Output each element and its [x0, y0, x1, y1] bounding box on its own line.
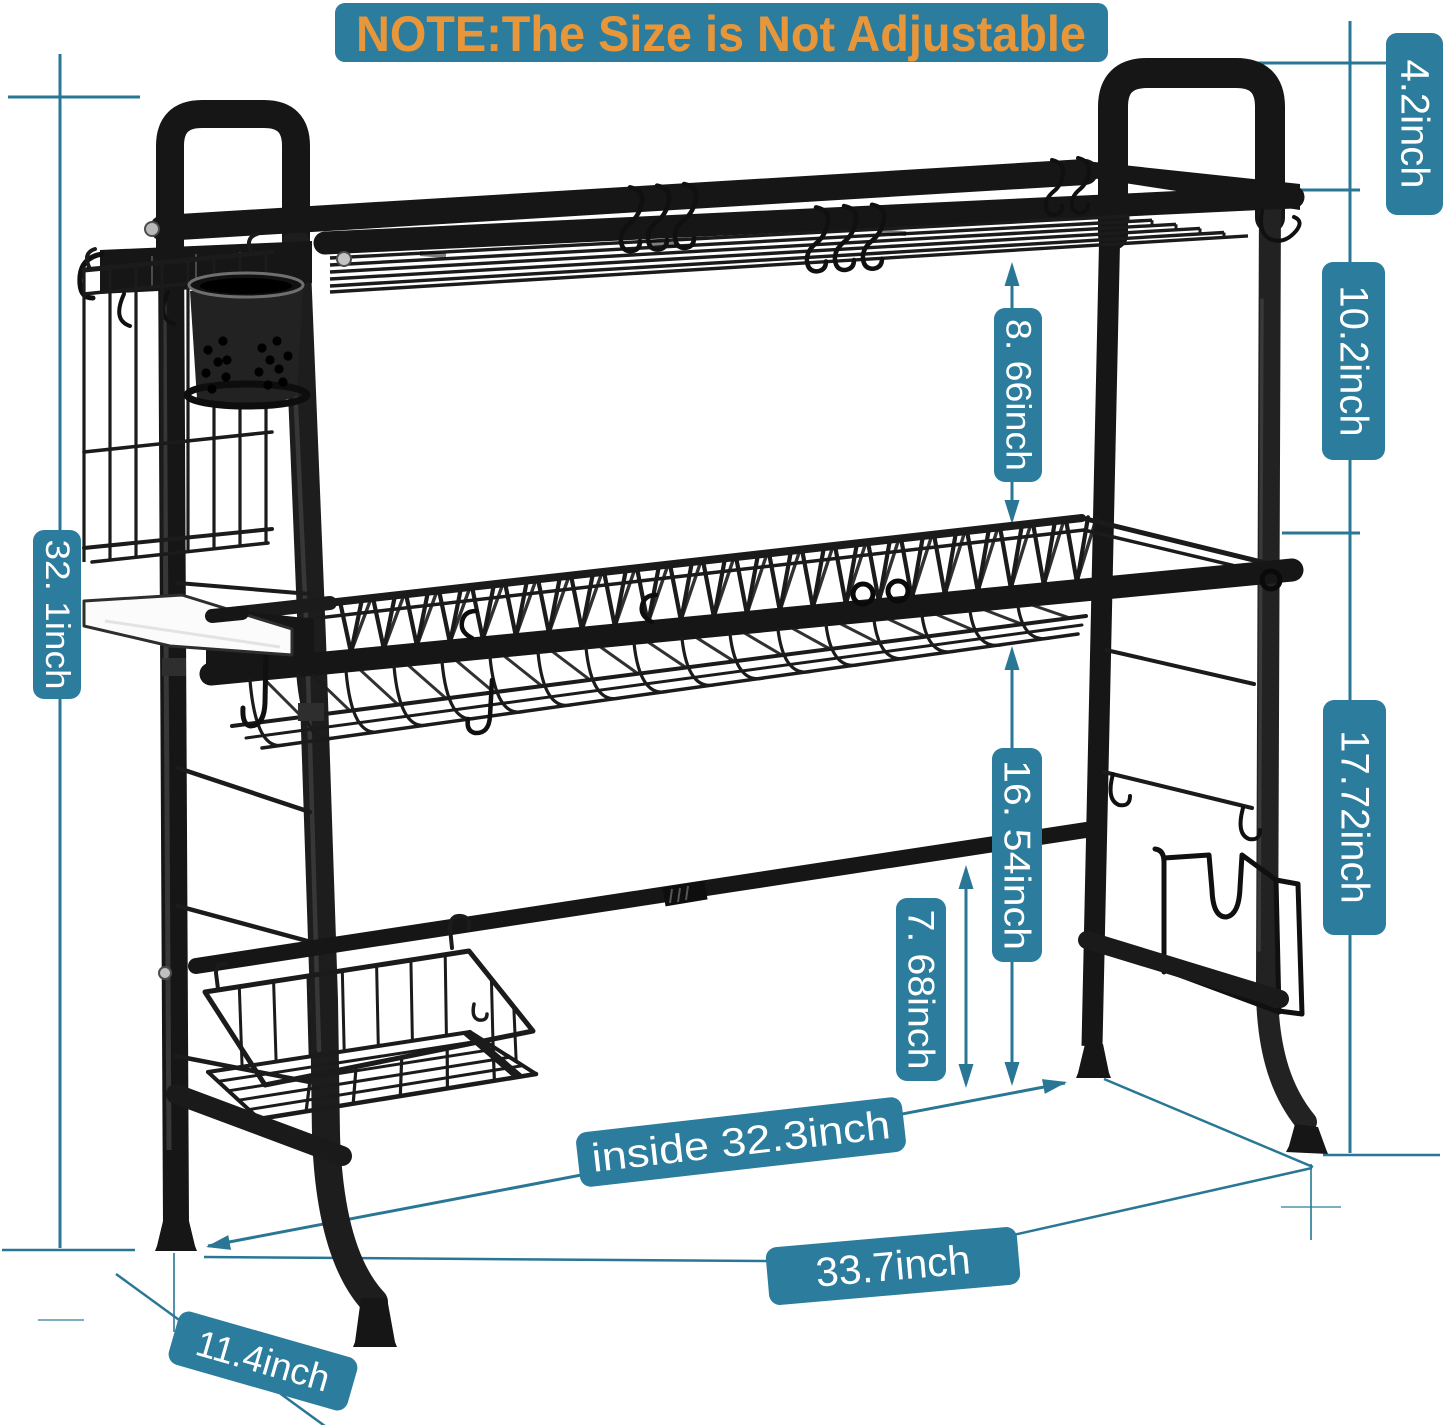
svg-text:17.72inch: 17.72inch [1333, 730, 1377, 903]
svg-text:32. 1inch: 32. 1inch [38, 540, 76, 690]
svg-text:4.2inch: 4.2inch [1393, 60, 1437, 189]
svg-text:7. 68inch: 7. 68inch [901, 910, 942, 1070]
svg-text:NOTE:The Size is Not Adjustabl: NOTE:The Size is Not Adjustable [356, 6, 1086, 62]
svg-text:16. 54inch: 16. 54inch [997, 760, 1038, 950]
svg-text:10.2inch: 10.2inch [1332, 285, 1376, 436]
svg-text:8. 66inch: 8. 66inch [999, 319, 1038, 471]
